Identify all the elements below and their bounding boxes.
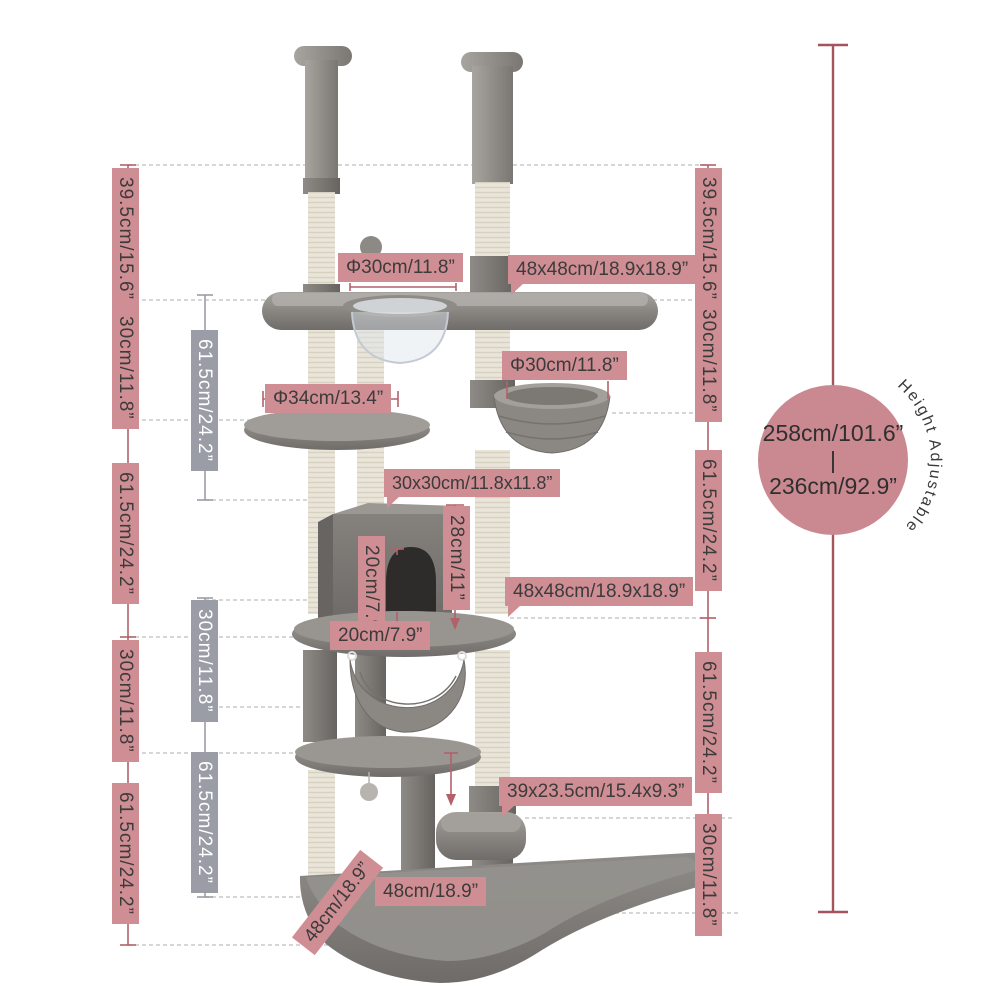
label-base-width: 48cm/18.9” — [375, 877, 486, 906]
right-measure-4: 61.5cm/24.2” — [695, 652, 722, 793]
height-adjustable-badge: 258cm/101.6” | 236cm/92.9” — [758, 385, 908, 535]
round-platform — [244, 409, 430, 450]
mid-platform — [295, 736, 481, 777]
label-condo-size: 30x30cm/11.8x11.8” — [384, 469, 560, 497]
max-height-value: 258cm/101.6” — [763, 420, 904, 446]
inner-measure-1: 61.5cm/24.2” — [191, 330, 218, 471]
step-perch — [436, 812, 526, 860]
inner-measure-2: 30cm/11.8” — [191, 600, 218, 722]
right-measure-2: 30cm/11.8” — [695, 300, 722, 422]
label-basket-diameter: Φ30cm/11.8” — [502, 351, 627, 380]
left-measure-4: 30cm/11.8” — [112, 640, 139, 762]
label-step-size: 39x23.5cm/15.4x9.3” — [499, 777, 692, 806]
label-top-platform-size: 48x48cm/18.9x18.9” — [508, 255, 696, 284]
right-measure-1: 39.5cm/15.6” — [695, 168, 722, 309]
height-separator: | — [830, 447, 836, 473]
inner-measure-3: 61.5cm/24.2” — [191, 752, 218, 893]
left-measure-5: 61.5cm/24.2” — [112, 783, 139, 924]
label-condo-depth: 20cm/7.9” — [330, 621, 430, 650]
cat-tree-illustration — [244, 46, 717, 983]
min-height-value: 236cm/92.9” — [769, 473, 897, 499]
basket — [494, 383, 610, 453]
right-measure-5: 30cm/11.8” — [695, 814, 722, 936]
right-measure-3: 61.5cm/24.2” — [695, 450, 722, 591]
left-measure-3: 61.5cm/24.2” — [112, 463, 139, 604]
left-measure-2: 30cm/11.8” — [112, 307, 139, 429]
cat-tree-dimension-diagram: 39.5cm/15.6” 30cm/11.8” 61.5cm/24.2” 30c… — [0, 0, 1000, 1000]
left-measure-1: 39.5cm/15.6” — [112, 168, 139, 309]
label-round-platform-diameter: Φ34cm/13.4” — [265, 384, 391, 413]
toy-ball-lower — [360, 783, 378, 801]
label-condo-height: 28cm/11” — [443, 506, 470, 610]
label-top-hole-diameter: Φ30cm/11.8” — [338, 253, 463, 282]
label-lower-platform-size: 48x48cm/18.9x18.9” — [505, 577, 693, 606]
